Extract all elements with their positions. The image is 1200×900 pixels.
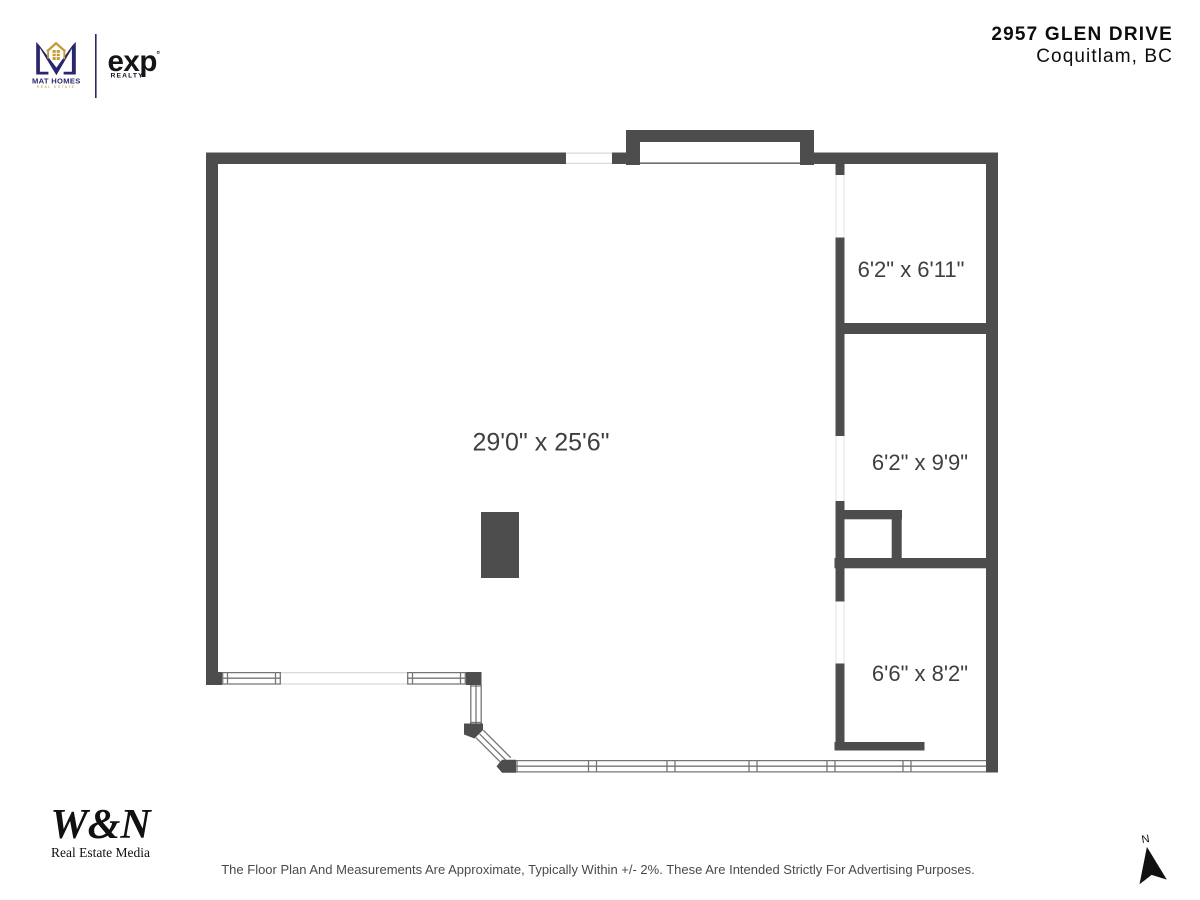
svg-text:REALTY: REALTY xyxy=(111,72,144,79)
svg-text:REAL ESTATE: REAL ESTATE xyxy=(37,85,76,89)
svg-text:N: N xyxy=(1141,833,1151,846)
